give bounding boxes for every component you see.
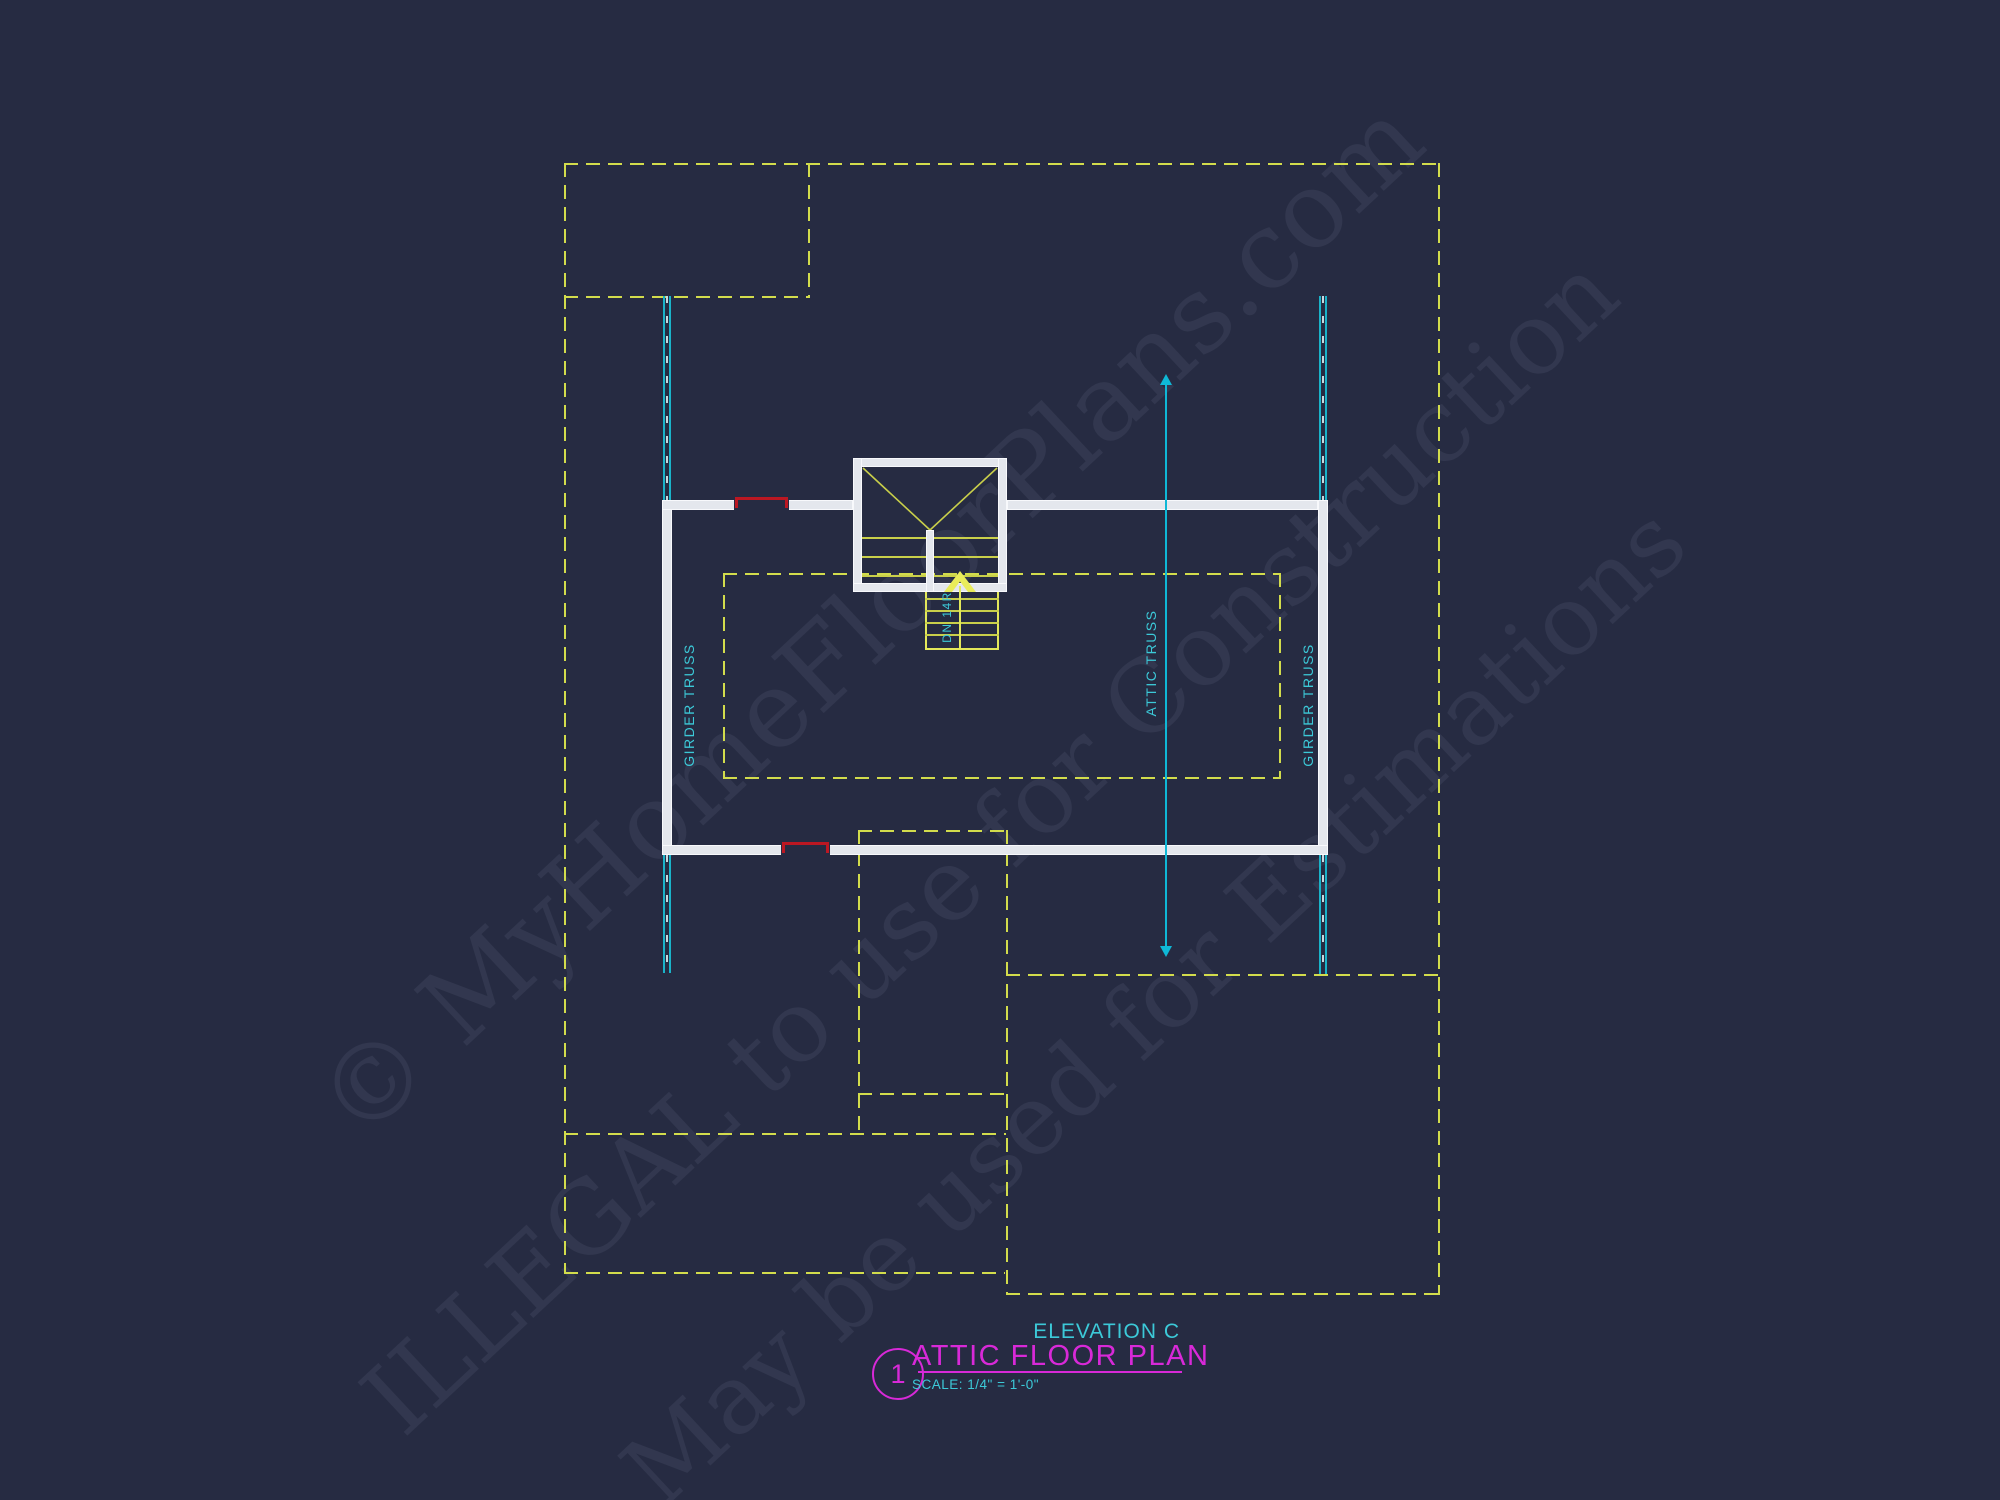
dashed-bottomright-rect-bottom (1006, 1293, 1438, 1295)
stair-run-right-edge (997, 592, 999, 650)
sheet-number-bubble: 1 (872, 1348, 924, 1400)
stairwell-center-divider (926, 530, 934, 592)
drawing-title: ATTIC FLOOR PLAN (912, 1340, 1209, 1373)
dashed-attic-area-bottom (723, 777, 1279, 779)
dashed-stairbay-left (858, 830, 860, 1133)
dashed-bottomleft-rect-top (564, 1133, 1006, 1135)
girder-truss-left-label: GIRDER TRUSS (681, 643, 697, 767)
girder-truss-right-label: GIRDER TRUSS (1300, 643, 1316, 767)
attic-truss-arrow-down-icon (1160, 946, 1172, 957)
attic-wall-left (662, 500, 672, 855)
attic-wall-right (1318, 500, 1328, 855)
attic-truss-label: ATTIC TRUSS (1143, 610, 1159, 717)
girder-truss-right-lower (1319, 855, 1327, 974)
scale-note: SCALE: 1/4" = 1'-0" (912, 1377, 1039, 1392)
dashed-attic-area-left (723, 573, 725, 779)
dashed-stairbay-right (1006, 830, 1008, 1295)
dashed-stairbay-top (858, 830, 1008, 832)
red-opening-top-wall (735, 497, 788, 508)
stair-tread (925, 634, 999, 636)
dashed-topleft-rect-bottom (564, 296, 808, 298)
attic-wall-bottom (662, 845, 1328, 855)
stair-run-bottom-edge (925, 648, 999, 650)
dashed-stairbay-bottom (858, 1093, 1008, 1095)
stair-tread (925, 622, 999, 624)
attic-truss-arrow-up-icon (1160, 374, 1172, 385)
attic-truss-line (1165, 384, 1167, 948)
dashed-outline-left-edge (564, 163, 566, 1274)
attic-wall-top-right-segment (1007, 500, 1318, 510)
dashed-outline-top-edge (564, 163, 1438, 165)
dashed-outline-right-edge (1438, 163, 1440, 1295)
stair-direction-arrow-shaft (959, 586, 961, 648)
title-underline (918, 1371, 1182, 1373)
dashed-attic-area-right (1279, 573, 1281, 779)
girder-truss-left-lower (663, 855, 671, 973)
attic-floor-plan-drawing: © MyHomeFloorPlans.com ILLEGAL to use fo… (0, 0, 2000, 1500)
stair-run-left-edge (925, 592, 927, 650)
girder-truss-right-upper (1319, 296, 1327, 500)
girder-truss-left-upper (663, 296, 671, 500)
stair-direction-label: DN 14R (940, 591, 954, 643)
dashed-bottomleft-rect-bottom (564, 1272, 1005, 1274)
stair-tread (925, 598, 999, 600)
red-opening-bottom-wall (782, 842, 829, 853)
stair-tread (925, 610, 999, 612)
dashed-topleft-rect-right (808, 163, 810, 298)
dashed-bottomright-rect-top (1006, 974, 1438, 976)
